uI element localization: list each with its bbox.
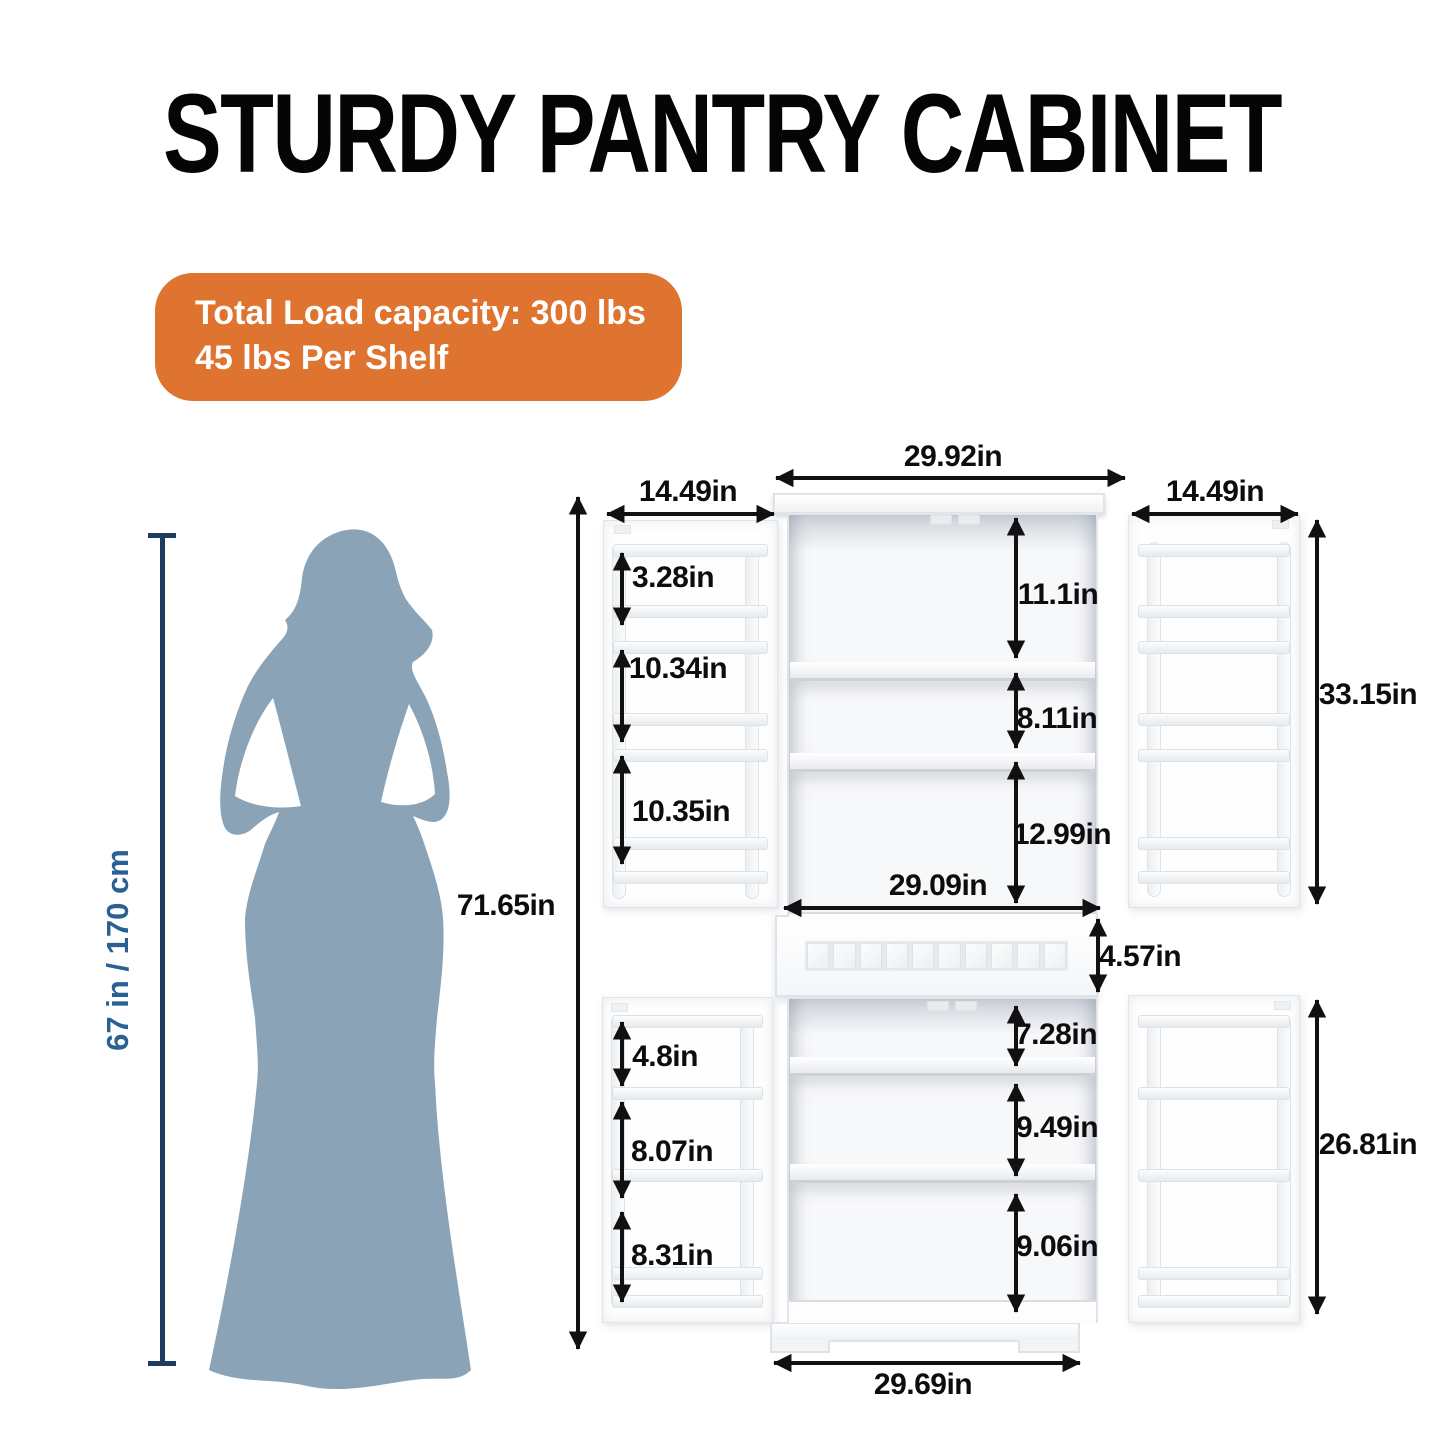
dim-label-drawer-height: 4.57in — [1099, 940, 1181, 974]
door-bar — [613, 713, 768, 726]
upper-right-door-catch — [1272, 520, 1289, 529]
cabinet-top-panel — [773, 493, 1105, 514]
page-title: STURDY PANTRY CABINET — [163, 71, 1282, 196]
dim-label-lower-int-2: 9.49in — [1016, 1111, 1098, 1145]
lower-left-door-rail-left — [611, 1015, 625, 1308]
door-bar — [613, 544, 768, 557]
door-bar — [612, 1295, 763, 1308]
drawer-front-panel — [805, 941, 1068, 971]
lower-hinge-plate-2 — [955, 1001, 977, 1011]
lower-right-door-rail-right — [1277, 1015, 1291, 1308]
dim-label-ll-door-2: 8.07in — [631, 1135, 713, 1169]
dim-label-lower-int-3: 9.06in — [1016, 1230, 1098, 1264]
dim-label-upper-int-3: 12.99in — [1013, 818, 1111, 852]
dim-label-lower-right-door-height: 26.81in — [1319, 1128, 1417, 1162]
door-bar — [1138, 1267, 1290, 1280]
dim-label-left-door-width: 14.49in — [639, 475, 737, 509]
door-bar — [1138, 641, 1290, 654]
dim-label-right-door-width: 14.49in — [1166, 475, 1264, 509]
lower-right-door — [1128, 995, 1300, 1323]
door-bar — [1138, 544, 1290, 557]
person-height-label: 67 in / 170 cm — [100, 849, 136, 1051]
lower-right-door-rail-left — [1147, 1015, 1161, 1308]
dim-label-upper-int-1: 11.1in — [1018, 578, 1098, 612]
person-height-line — [160, 536, 165, 1363]
upper-right-door — [1128, 515, 1300, 908]
dim-label-ll-door-3: 8.31in — [631, 1239, 713, 1273]
dim-label-upper-int-2: 8.11in — [1017, 702, 1097, 736]
lower-hinge-plate-1 — [927, 1001, 949, 1011]
dim-label-interior-width: 29.09in — [889, 869, 987, 903]
lower-shelf-2 — [790, 1164, 1095, 1183]
dim-label-top-width: 29.92in — [904, 440, 1002, 474]
door-bar — [612, 1087, 763, 1100]
cabinet-base — [770, 1322, 1080, 1342]
dim-label-ul-door-3: 10.35in — [632, 795, 730, 829]
door-bar — [1138, 1169, 1290, 1182]
door-bar — [613, 871, 768, 884]
lower-right-door-catch — [1274, 1001, 1291, 1010]
door-bar — [612, 1015, 763, 1028]
door-bar — [1138, 605, 1290, 618]
dim-label-ll-door-1: 4.8in — [632, 1040, 698, 1074]
lower-left-door-rail-right — [740, 1015, 754, 1308]
cabinet-foot-right — [1018, 1340, 1080, 1353]
upper-cabinet-floor — [789, 912, 1096, 937]
page-title-wrap: STURDY PANTRY CABINET — [0, 0, 1445, 200]
upper-left-door-catch — [614, 525, 631, 534]
door-bar — [1138, 1295, 1290, 1308]
upper-hinge-plate-1 — [930, 515, 952, 525]
woman-silhouette — [195, 518, 485, 1393]
load-capacity-line1: Total Load capacity: 300 lbs — [195, 291, 682, 336]
door-bar — [1138, 749, 1290, 762]
dim-label-bottom-width: 29.69in — [874, 1368, 972, 1402]
dim-label-lower-int-1: 7.28in — [1015, 1018, 1097, 1052]
door-bar — [613, 837, 768, 850]
door-bar — [1138, 1087, 1290, 1100]
dim-label-upper-right-door-height: 33.15in — [1319, 678, 1417, 712]
upper-shelf-2 — [790, 753, 1095, 772]
door-bar — [1138, 713, 1290, 726]
lower-shelf-1 — [790, 1057, 1095, 1076]
door-bar — [613, 749, 768, 762]
load-capacity-line2: 45 lbs Per Shelf — [195, 336, 682, 381]
dim-label-ul-door-1: 3.28in — [632, 561, 714, 595]
product-dimension-diagram: { "title": "STURDY PANTRY CABINET", "bad… — [0, 0, 1445, 1445]
door-bar — [1138, 1015, 1290, 1028]
lower-cabinet-floor — [789, 1300, 1096, 1323]
upper-hinge-plate-2 — [958, 515, 980, 525]
door-bar — [613, 605, 768, 618]
person-height-cap-bottom — [148, 1361, 176, 1366]
dim-label-ul-door-2: 10.34in — [629, 652, 727, 686]
door-bar — [612, 1169, 763, 1182]
cabinet-foot-left — [770, 1340, 830, 1353]
door-bar — [1138, 837, 1290, 850]
upper-shelf-1 — [790, 662, 1095, 681]
load-capacity-badge: Total Load capacity: 300 lbs 45 lbs Per … — [155, 273, 682, 401]
lower-left-door-catch — [611, 1003, 628, 1012]
door-bar — [1138, 871, 1290, 884]
dim-label-overall-height: 71.65in — [457, 889, 555, 923]
